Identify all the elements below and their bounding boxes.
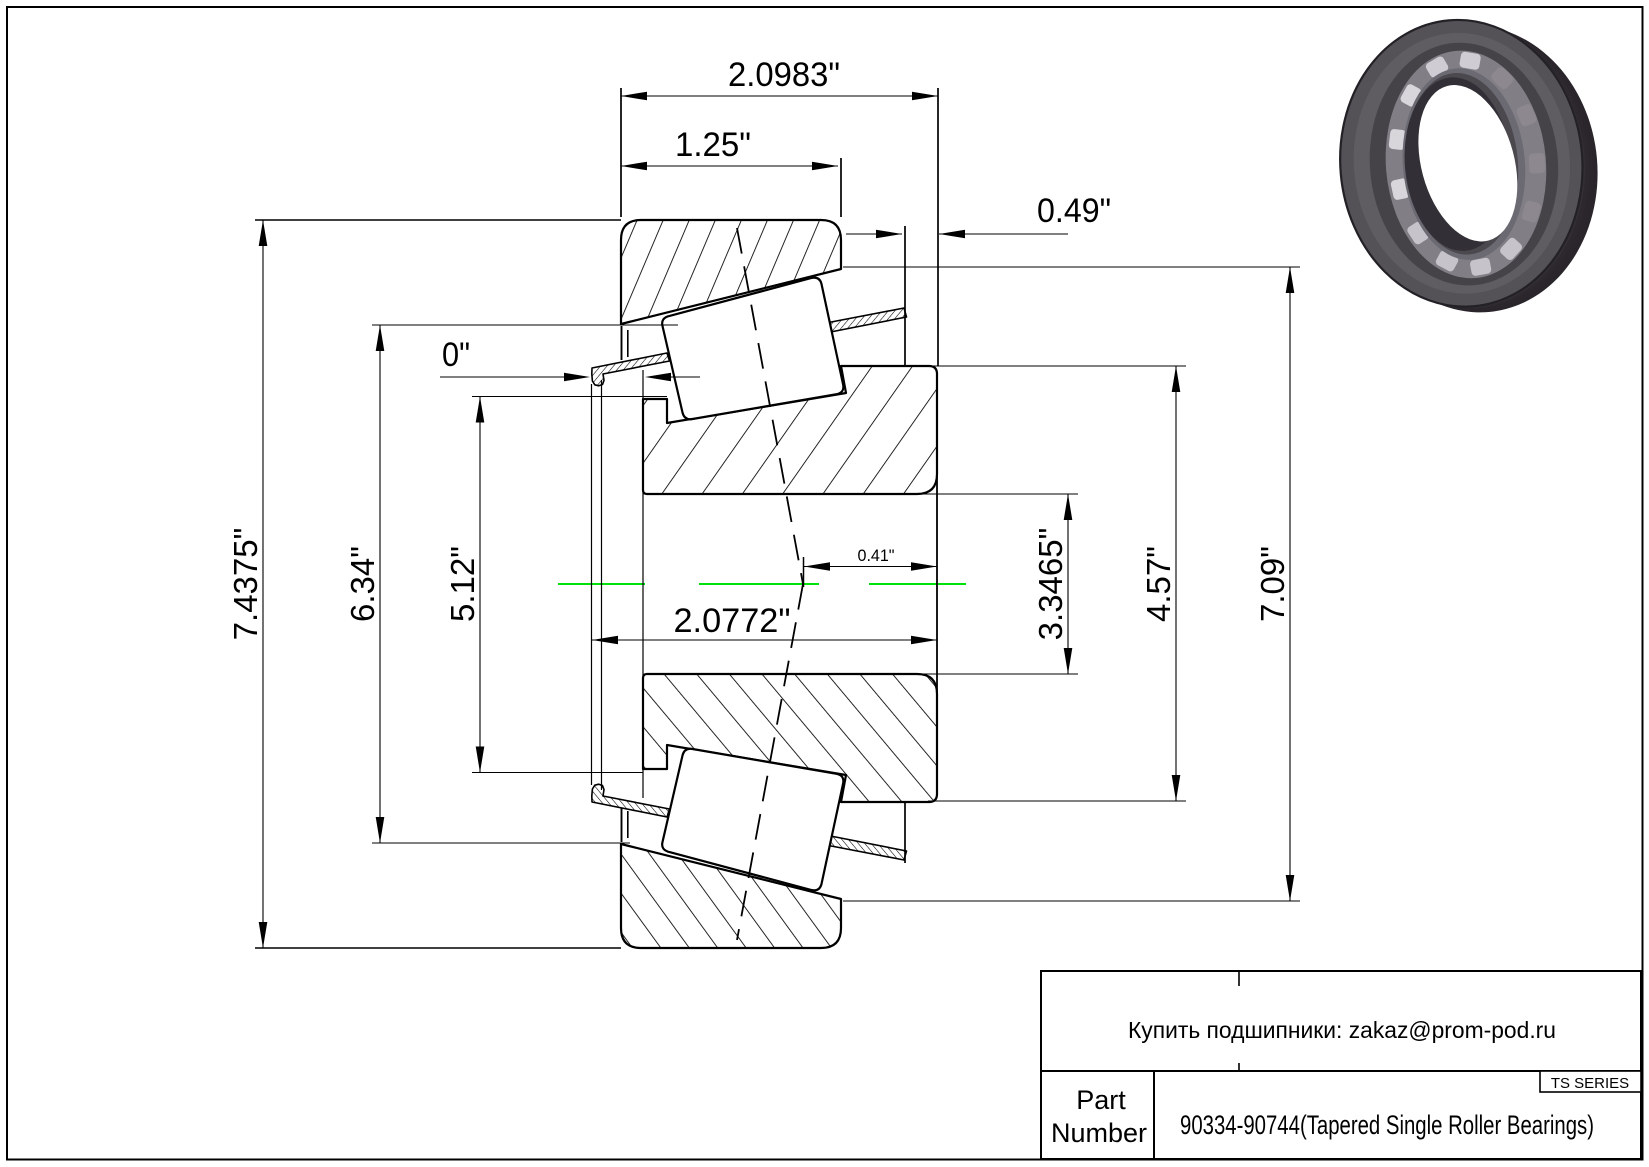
svg-text:Купить подшипники: zakaz@prom-: Купить подшипники: zakaz@prom-pod.ru (1128, 1017, 1556, 1043)
svg-text:2.0772": 2.0772" (674, 602, 791, 640)
svg-text:0.41": 0.41" (858, 546, 895, 565)
svg-text:7.09": 7.09" (1254, 546, 1291, 622)
svg-text:Number: Number (1051, 1118, 1147, 1148)
svg-text:0": 0" (442, 336, 470, 374)
svg-text:TS SERIES: TS SERIES (1551, 1075, 1629, 1092)
svg-text:2.0983": 2.0983" (728, 56, 840, 94)
svg-text:5.12": 5.12" (444, 546, 481, 622)
svg-text:4.57": 4.57" (1140, 546, 1177, 622)
svg-text:0.49": 0.49" (1037, 192, 1111, 230)
svg-text:90334-90744(Tapered Single Rol: 90334-90744(Tapered Single Roller Bearin… (1180, 1110, 1594, 1140)
svg-text:Part: Part (1076, 1085, 1126, 1115)
svg-text:1.25": 1.25" (675, 126, 751, 164)
svg-text:7.4375": 7.4375" (227, 528, 264, 641)
svg-text:6.34": 6.34" (344, 546, 381, 622)
svg-text:3.3465": 3.3465" (1032, 528, 1069, 641)
